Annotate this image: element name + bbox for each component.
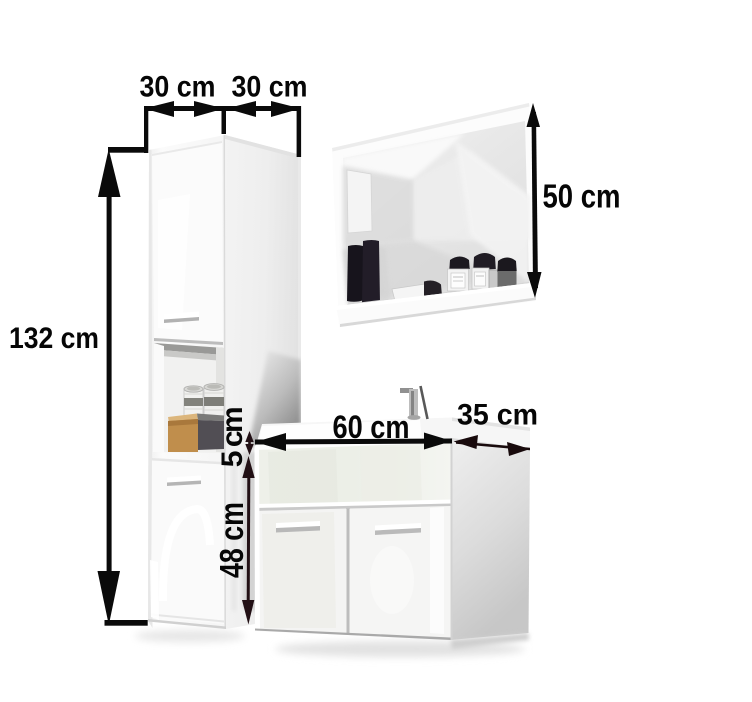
svg-text:5 cm: 5 cm <box>216 408 249 467</box>
svg-text:50 cm: 50 cm <box>543 178 621 215</box>
svg-text:30 cm: 30 cm <box>140 71 216 104</box>
svg-text:30 cm: 30 cm <box>232 71 308 104</box>
svg-text:35 cm: 35 cm <box>457 399 538 432</box>
svg-text:60 cm: 60 cm <box>333 409 410 445</box>
svg-text:132 cm: 132 cm <box>9 322 99 355</box>
svg-text:48 cm: 48 cm <box>213 502 250 578</box>
